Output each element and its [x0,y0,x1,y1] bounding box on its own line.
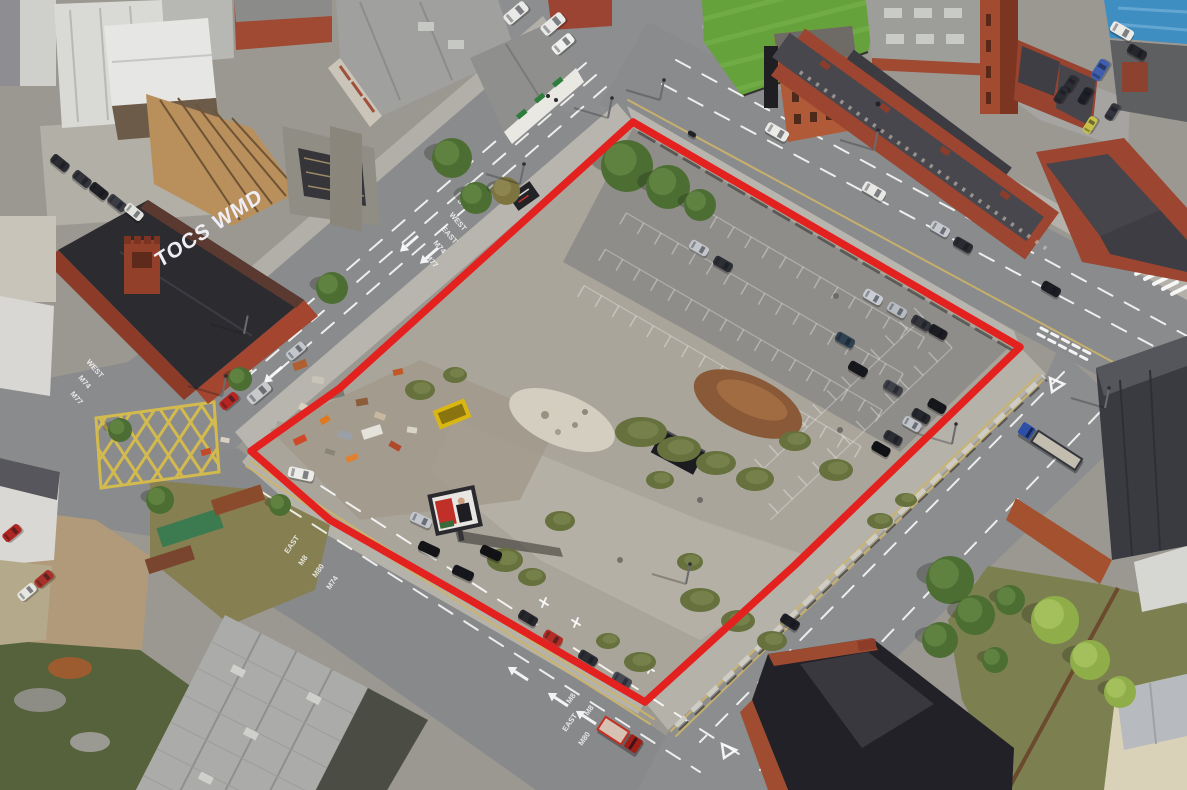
aerial-photo-canvas: BUSSTWESTEASTM74M77WESTM74M77M8M8M8EASTM… [0,0,1187,790]
brick-tower [980,0,1018,114]
aerial-photo: BUSSTWESTEASTM74M77WESTM74M77M8M8M8EASTM… [0,0,1187,790]
warehouse-top-right [866,0,994,76]
